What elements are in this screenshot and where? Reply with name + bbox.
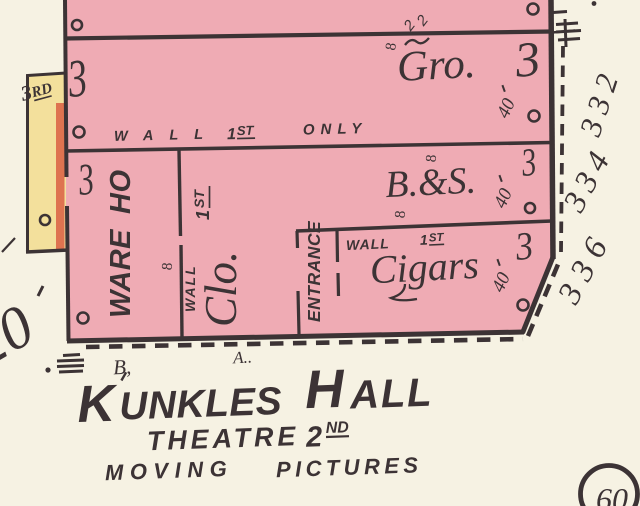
svg-text:1: 1 — [227, 126, 236, 143]
svg-text:K: K — [76, 375, 119, 434]
svg-text:ST: ST — [237, 123, 255, 138]
svg-text:PICTURES: PICTURES — [276, 452, 423, 482]
svg-text:8: 8 — [159, 262, 176, 271]
svg-text:ONLY: ONLY — [303, 120, 368, 138]
svg-text:WALL: WALL — [114, 126, 219, 144]
svg-text:60: 60 — [596, 481, 628, 506]
svg-text:MOVING: MOVING — [105, 456, 234, 485]
svg-text:H: H — [304, 359, 346, 420]
svg-text:ENTRANCE: ENTRANCE — [304, 220, 324, 322]
svg-text:8: 8 — [392, 210, 409, 219]
svg-text:B,: B, — [112, 354, 131, 379]
svg-text:2: 2 — [304, 421, 322, 454]
svg-text:A..: A.. — [232, 347, 253, 367]
svg-text:ALL: ALL — [348, 371, 434, 418]
svg-text:WARE HO: WARE HO — [105, 170, 137, 319]
svg-text:Gro.: Gro. — [396, 40, 477, 91]
svg-text:ST: ST — [191, 189, 207, 208]
svg-text:WALL: WALL — [346, 235, 390, 253]
svg-text:B.&S.: B.&S. — [384, 159, 477, 206]
svg-text:1: 1 — [420, 232, 429, 248]
svg-text:Clo.: Clo. — [196, 251, 246, 327]
svg-text:ST: ST — [429, 232, 445, 245]
svg-text:ND: ND — [325, 419, 349, 437]
svg-text:UNKLES: UNKLES — [119, 380, 283, 429]
svg-text:1: 1 — [193, 210, 213, 220]
svg-text:THEATRE: THEATRE — [147, 421, 300, 456]
